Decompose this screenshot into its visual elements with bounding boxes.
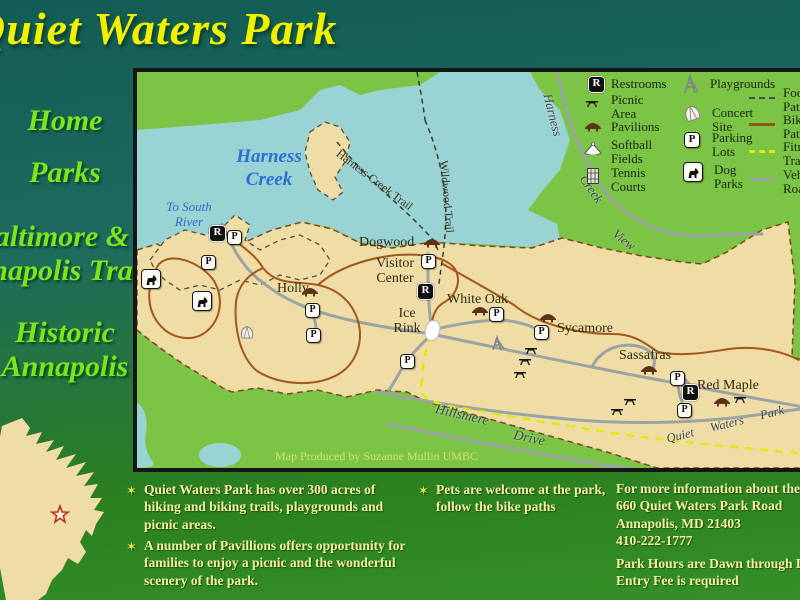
parking-marker: P [201, 255, 216, 270]
contact-phone: 410-222-1777 [616, 532, 800, 549]
legend-label-softball-fields: Softball Fields [611, 138, 652, 166]
legend-label-playgrounds: Playgrounds [710, 77, 775, 91]
legend-picnic-icon [586, 100, 598, 107]
map-credit: Map Produced by Suzanne Mullin UMBC [275, 449, 478, 464]
maryland-inset-map [0, 418, 114, 600]
quiet-waters-park-page: { "title": "Quiet Waters Park", "nav": {… [0, 0, 800, 600]
parking-marker: P [305, 303, 320, 318]
area-label-sassafras: Sassafras [619, 348, 671, 363]
legend-softball-icon [583, 141, 603, 155]
parking-marker: P [306, 328, 321, 343]
fee-line: Entry Fee is required [616, 572, 800, 589]
legend-fitness-line [749, 150, 775, 153]
restroom-marker: R [417, 283, 434, 300]
picnic-table-icon [734, 396, 746, 403]
legend-dog-icon [683, 162, 703, 182]
legend-restroom-icon: R [588, 76, 605, 93]
dog-park-marker [141, 269, 161, 289]
contact-block: For more information about the park 660 … [616, 480, 800, 549]
contact-line-2: 660 Quiet Waters Park Road [616, 497, 800, 514]
info-bullet-3: Pets are welcome at the park, follow the… [436, 481, 621, 516]
legend-vehicle-line [749, 178, 775, 181]
legend-label-foot-paths: Foot Paths [783, 86, 800, 114]
legend-label-dog-parks: Dog Parks [714, 163, 743, 191]
legend-label-parking-lots: Parking Lots [712, 131, 752, 159]
pavilion-icon [713, 397, 731, 407]
picnic-table-icon [514, 371, 526, 378]
parking-marker: P [421, 254, 436, 269]
concert-site-icon [239, 325, 256, 341]
legend-tennis-icon [587, 168, 599, 184]
bullet-star-icon: ✶ [418, 483, 429, 499]
area-label-red-maple: Red Maple [697, 378, 759, 393]
pavilion-icon [640, 365, 658, 375]
parking-marker: P [400, 354, 415, 369]
area-label-dogwood: Dogwood [359, 235, 414, 250]
park-map: To South River Harness Creek Harness Cre… [133, 68, 800, 472]
pavilion-icon [539, 313, 557, 323]
area-label-ice-rink: Ice Rink [385, 306, 429, 337]
hours-block: Park Hours are Dawn through Dusk Entry F… [616, 555, 800, 590]
info-bullet-1: Quiet Waters Park has over 300 acres of … [144, 481, 406, 533]
legend-label-picnic-area: Picnic Area [611, 93, 644, 121]
pavilion-icon [471, 306, 489, 316]
legend-playground-icon [682, 74, 701, 94]
parking-marker: P [534, 325, 549, 340]
legend-parking-icon: P [684, 132, 700, 148]
legend-label-restrooms: Restrooms [611, 77, 667, 91]
pavilion-icon [301, 287, 319, 297]
page-title: Quiet Waters Park [0, 2, 337, 55]
restroom-marker: R [209, 225, 226, 242]
contact-line-3: Annapolis, MD 21403 [616, 515, 800, 532]
parking-marker: P [670, 371, 685, 386]
restroom-marker: R [682, 384, 699, 401]
parking-marker: P [677, 403, 692, 418]
dog-icon [143, 273, 159, 286]
picnic-table-icon [624, 398, 636, 405]
legend-label-tennis-courts: Tennis Courts [611, 166, 646, 194]
bullet-star-icon: ✶ [126, 483, 137, 499]
pavilion-icon [423, 238, 441, 248]
legend-footpath-line [749, 97, 775, 99]
parking-marker: P [227, 230, 242, 245]
picnic-table-icon [611, 408, 623, 415]
legend-concert-icon [682, 104, 702, 123]
picnic-table-icon [519, 358, 531, 365]
info-bullet-2: A number of Pavillions offers opportunit… [144, 537, 406, 589]
parking-marker: P [489, 307, 504, 322]
picnic-table-icon [525, 347, 537, 354]
legend-bikepath-line [749, 123, 775, 126]
nav-item-historic-annapolis[interactable]: Historic Annapolis [0, 316, 150, 383]
playground-icon [490, 335, 507, 351]
contact-line-1: For more information about the park [616, 480, 800, 497]
area-label-sycamore: Sycamore [557, 321, 613, 336]
dog-icon [194, 295, 210, 308]
legend-label-fitness-trail: Fitness Trail [783, 140, 800, 168]
dog-park-marker [192, 291, 212, 311]
legend-pavilion-icon [584, 122, 602, 132]
legend-label-pavilions: Pavilions [611, 120, 659, 134]
dog-icon [685, 166, 701, 179]
legend-label-vehicle-roads: Vehicle Roads [783, 168, 800, 196]
label-harness-creek: Harness Creek [223, 146, 315, 192]
legend-label-bike-paths: Bike Paths [783, 113, 800, 141]
bullet-star-icon: ✶ [126, 539, 137, 555]
hours-line: Park Hours are Dawn through Dusk [616, 555, 800, 572]
